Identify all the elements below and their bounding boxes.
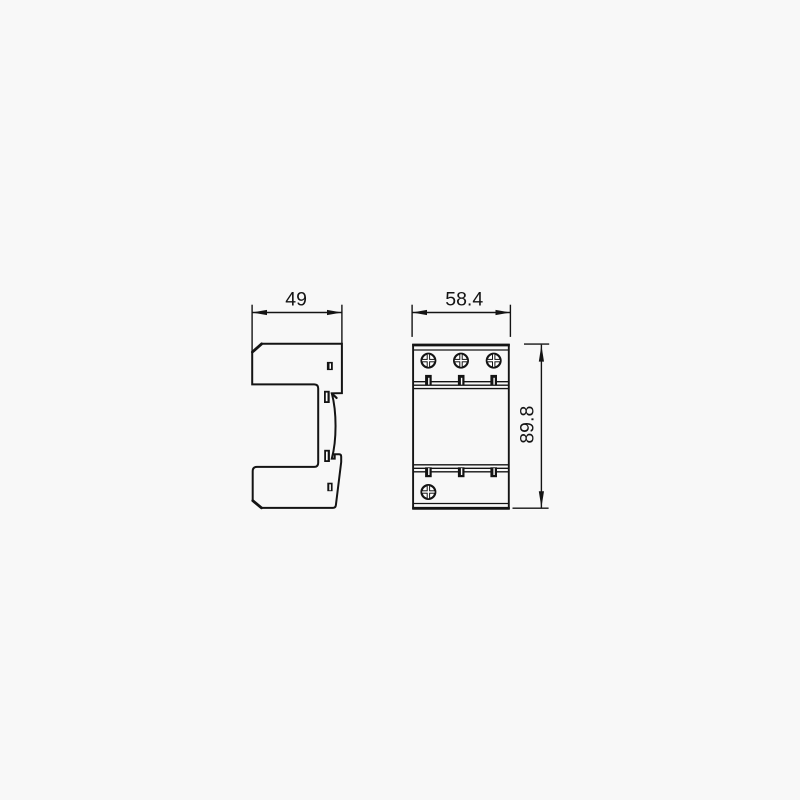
svg-text:58.4: 58.4 [445, 289, 483, 311]
svg-text:49: 49 [285, 288, 307, 310]
svg-text:89.8: 89.8 [516, 406, 538, 444]
